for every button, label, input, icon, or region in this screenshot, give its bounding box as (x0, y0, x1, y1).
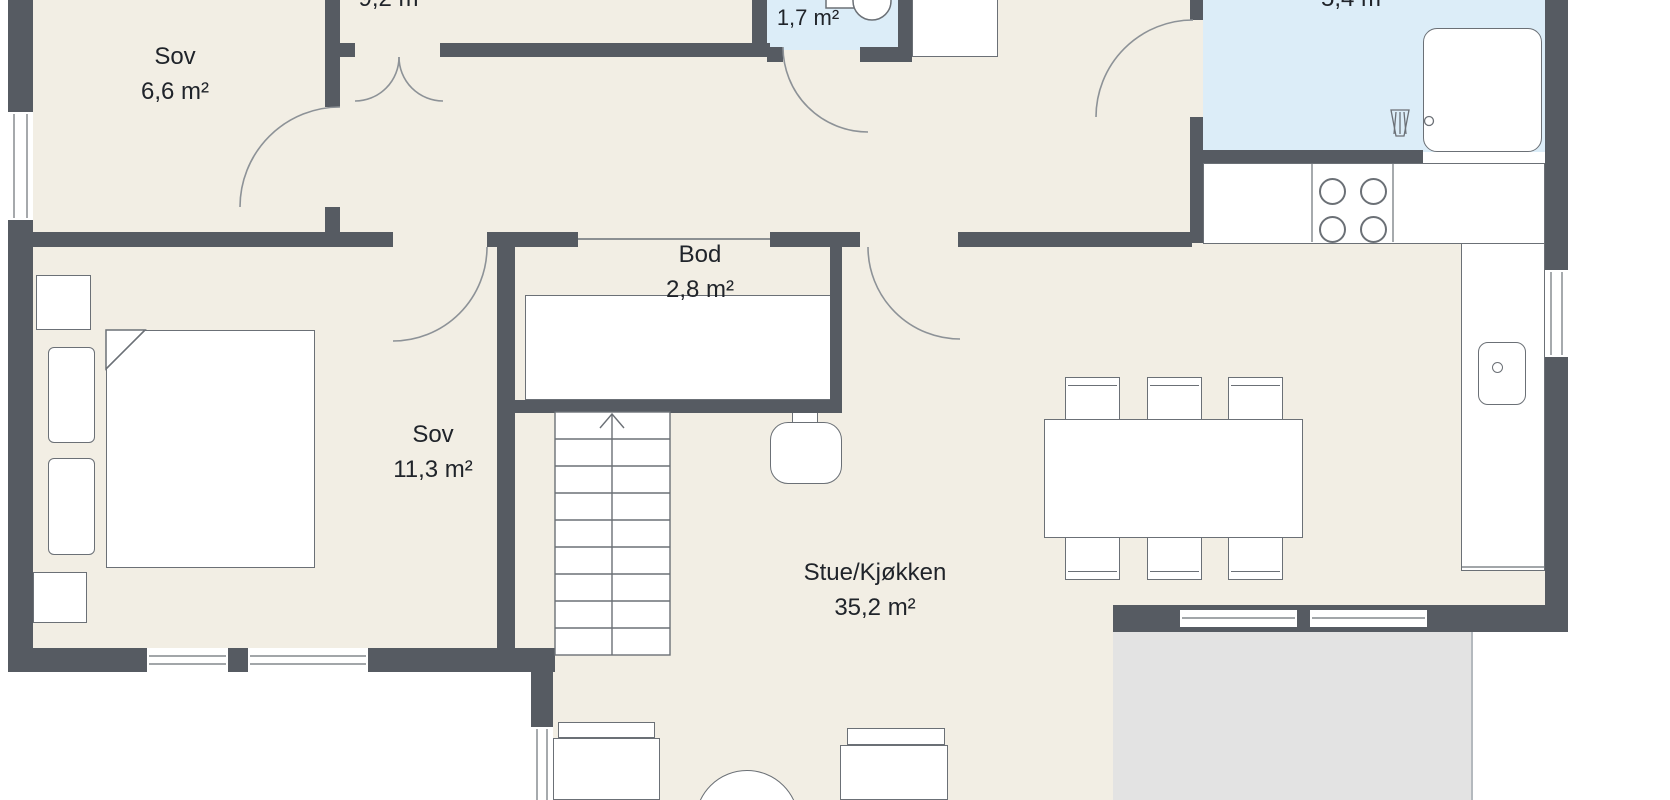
room-area: 35,2 m² (770, 591, 980, 626)
window-south-2 (248, 648, 368, 672)
window-right (1545, 270, 1568, 357)
wall-hall-bottom-c (770, 232, 860, 247)
room-area: 1,7 m² (762, 2, 854, 34)
window-terrace-1 (1180, 610, 1297, 627)
room-area: 6,6 m² (95, 75, 255, 110)
bed (106, 330, 315, 568)
nightstand-bottom (33, 572, 87, 623)
terrace (1113, 632, 1473, 800)
dining-chair (1065, 537, 1120, 580)
wall-hall-top (440, 43, 770, 57)
floor-plan: Sov 6,6 m² 9,2 m² 1,7 m² 5,4 m² Bod 2,8 … (0, 0, 1670, 800)
dining-table (1044, 419, 1303, 538)
stove-burner (1319, 216, 1346, 243)
wall-stub (497, 648, 555, 672)
room-label-wc: 1,7 m² (762, 2, 854, 34)
wardrobe (912, 0, 998, 57)
kitchen-counter-right (1461, 243, 1545, 571)
window-terrace-2 (1310, 610, 1427, 627)
room-area: 2,8 m² (620, 273, 780, 308)
wall-bathroom-bottom (1203, 150, 1423, 163)
armchair-back (558, 722, 655, 738)
room-label-bedroom-1: Sov 6,6 m² (95, 40, 255, 110)
dining-chair (1228, 537, 1283, 580)
wall-bathroom-left-top (1190, 0, 1203, 20)
water-heater (770, 422, 842, 484)
stove-burner (1360, 216, 1387, 243)
room-area: 9,2 m² (330, 0, 455, 17)
armchair-seat (840, 745, 948, 800)
wall-storage-right (830, 247, 842, 413)
bathtub (1423, 28, 1542, 152)
wall-hall-bottom-d (958, 232, 1192, 247)
wall-pier (338, 43, 355, 57)
stove-burner (1360, 178, 1387, 205)
room-name: Sov (95, 40, 255, 75)
wall-exterior-left (8, 0, 33, 648)
room-name: Sov (343, 418, 523, 453)
floor-hall-and-top-rooms (20, 0, 1210, 250)
window-west-lower (531, 727, 553, 800)
wall-hall-bottom-b (487, 232, 578, 247)
room-label-bathroom: 5,4 m² (1290, 0, 1420, 17)
wall-storage-bottom (497, 400, 842, 413)
wall-hall-bottom-a (8, 232, 393, 247)
pillow (48, 458, 95, 555)
armchair-back (847, 728, 945, 745)
dining-chair (1147, 377, 1202, 420)
window-left (8, 112, 33, 220)
stove-burner (1319, 178, 1346, 205)
room-label-bedroom-2: 9,2 m² (330, 0, 455, 17)
window-south-1 (147, 648, 228, 672)
pillow (48, 347, 95, 443)
room-label-living-kitchen: Stue/Kjøkken 35,2 m² (770, 556, 980, 626)
wall-wc-right (898, 0, 912, 62)
nightstand-top (36, 275, 91, 330)
room-label-bedroom-3: Sov 11,3 m² (343, 418, 523, 488)
room-area: 5,4 m² (1290, 0, 1420, 17)
dining-chair (1147, 537, 1202, 580)
storage-closet (525, 295, 832, 400)
sink-faucet (1492, 362, 1503, 373)
kitchen-sink (1478, 342, 1526, 405)
room-area: 11,3 m² (343, 453, 523, 488)
dining-chair (1228, 377, 1283, 420)
wall-living-west (531, 672, 553, 728)
room-label-storage: Bod 2,8 m² (620, 238, 780, 308)
armchair-seat (553, 738, 660, 800)
wall-bathroom-left-bottom (1190, 117, 1203, 243)
wall-wc-bottom-left (767, 47, 783, 62)
room-name: Bod (620, 238, 780, 273)
room-name: Stue/Kjøkken (770, 556, 980, 591)
dining-chair (1065, 377, 1120, 420)
